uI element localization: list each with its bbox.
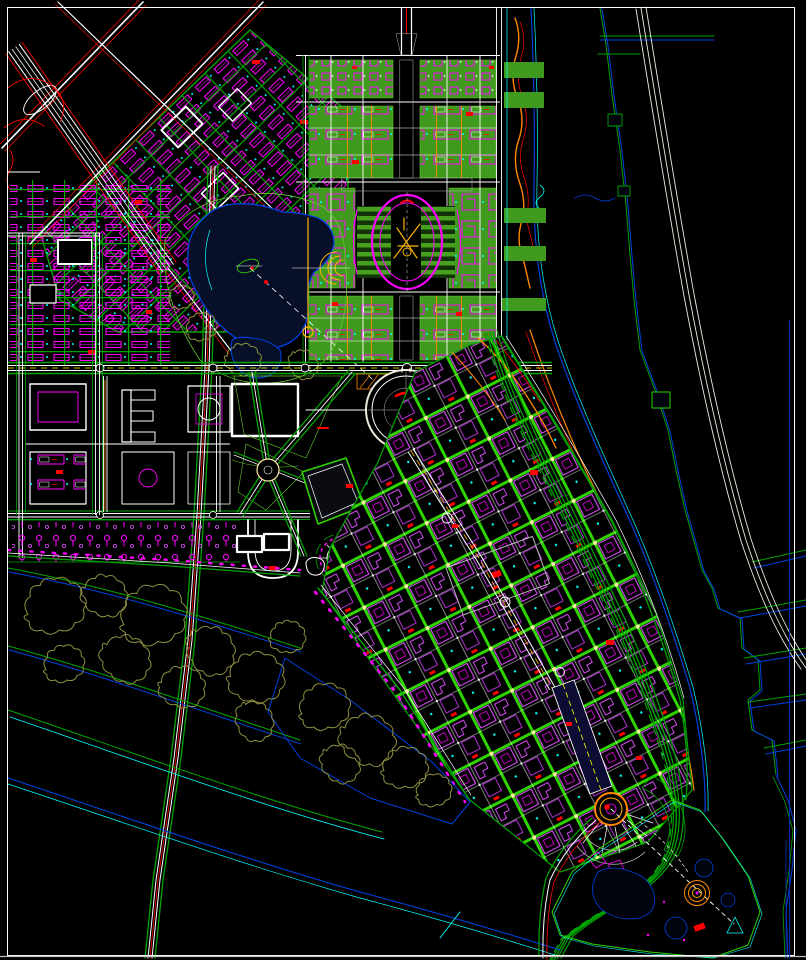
left-district xyxy=(10,180,170,366)
white-twin-building-b xyxy=(264,534,289,550)
master-plan-drawing xyxy=(0,0,806,960)
small-circle-node xyxy=(257,459,279,481)
white-twin-building-a xyxy=(237,536,262,552)
cad-viewport xyxy=(0,0,806,960)
esplanade-rows xyxy=(8,520,240,562)
target-rings xyxy=(685,881,710,906)
civic-oval xyxy=(354,192,461,292)
